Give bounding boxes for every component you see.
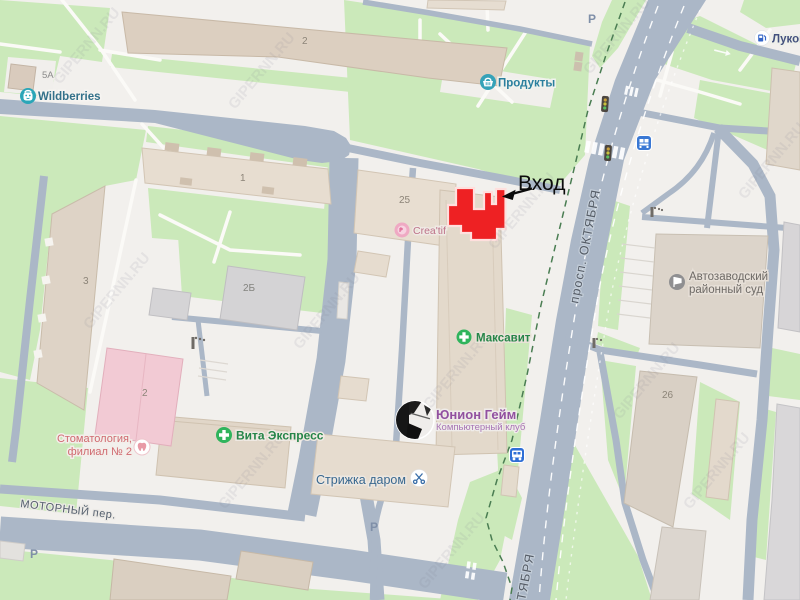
- svg-text:филиал № 2: филиал № 2: [68, 446, 132, 458]
- svg-text:3: 3: [83, 276, 89, 287]
- svg-text:районный суд: районный суд: [689, 284, 763, 296]
- svg-text:Р: Р: [370, 520, 378, 534]
- svg-text:Продукты: Продукты: [498, 78, 555, 90]
- svg-text:2: 2: [302, 36, 308, 47]
- svg-text:Стрижка даром: Стрижка даром: [316, 473, 406, 487]
- svg-text:Максавит: Максавит: [476, 333, 531, 345]
- svg-text:5А: 5А: [42, 70, 54, 81]
- svg-text:Crea'tif: Crea'tif: [413, 225, 446, 237]
- svg-text:26: 26: [662, 390, 674, 401]
- svg-text:2: 2: [142, 388, 148, 399]
- svg-text:Автозаводский: Автозаводский: [689, 271, 768, 283]
- svg-text:Компьютерный клуб: Компьютерный клуб: [436, 422, 526, 433]
- svg-text:Р: Р: [30, 547, 38, 561]
- svg-text:Лукойл: Лукойл: [772, 34, 800, 46]
- svg-text:Вита Экспресс: Вита Экспресс: [236, 429, 324, 443]
- svg-text:1: 1: [240, 173, 246, 184]
- svg-text:Юнион Гейм: Юнион Гейм: [436, 407, 516, 422]
- svg-text:Р: Р: [588, 12, 596, 26]
- svg-text:Стоматология,: Стоматология,: [57, 433, 132, 445]
- svg-text:Wildberries: Wildberries: [38, 91, 101, 103]
- svg-text:2Б: 2Б: [243, 283, 256, 294]
- svg-text:25: 25: [399, 195, 411, 206]
